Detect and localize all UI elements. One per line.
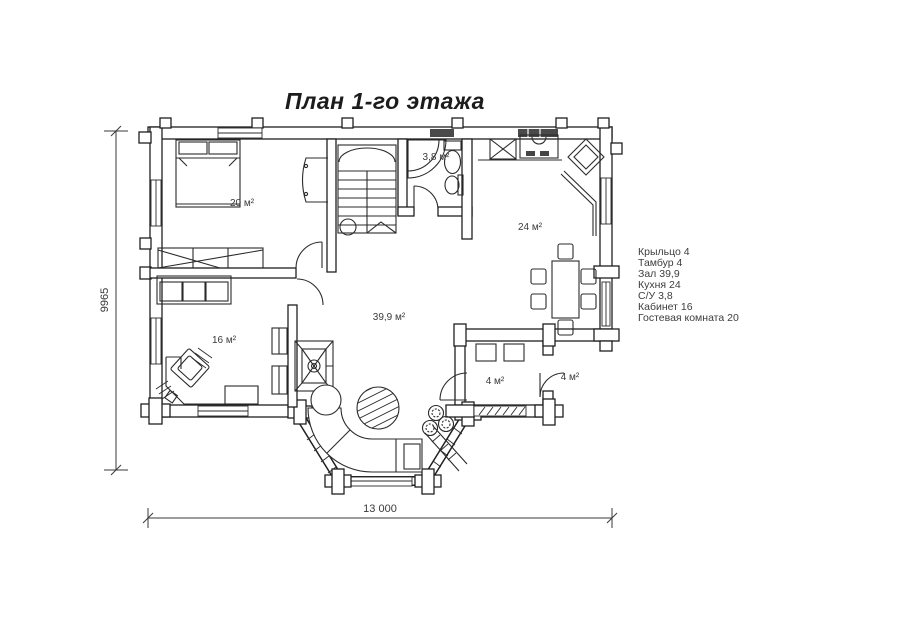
room-label-guest-room: 20 м² xyxy=(230,198,255,209)
room-legend: Крыльцо 4 Тамбур 4 Зал 39,9 Кухня 24 С/У… xyxy=(638,247,739,324)
interior-walls xyxy=(150,139,472,407)
office-armchair xyxy=(170,348,210,388)
fireplace xyxy=(295,341,333,391)
bathroom-fixtures xyxy=(408,140,463,195)
room-label-tambour: 4 м² xyxy=(486,376,505,387)
tambour-bench xyxy=(476,344,524,361)
room-label-hall: 39,9 м² xyxy=(373,312,406,323)
wardrobe xyxy=(158,248,263,268)
double-bed xyxy=(176,140,240,207)
legend-item-guest-room: Гостевая комната 20 xyxy=(638,313,739,324)
hall-shelves xyxy=(272,328,287,394)
dimension-height: 9965 xyxy=(99,288,111,312)
log-joints xyxy=(139,118,622,494)
room-label-kitchen: 24 м² xyxy=(518,222,543,233)
dimension-width: 13 000 xyxy=(363,503,397,515)
floor-plan-page: План 1-го этажа xyxy=(0,0,900,636)
office-desk xyxy=(166,357,258,404)
room-label-bathroom: 3,8 м² xyxy=(423,152,451,163)
corner-stove xyxy=(561,139,604,236)
room-label-office: 16 м² xyxy=(212,335,237,346)
bedroom-cabinet xyxy=(303,158,329,202)
dining-set xyxy=(531,244,596,335)
throw-blanket xyxy=(192,348,212,368)
office-sofa xyxy=(157,276,231,304)
round-rug xyxy=(352,372,404,446)
floor-plan-drawing: 9965 13 000 20 м² 3,8 м² 24 м² 39,9 м² 1… xyxy=(0,0,900,636)
kitchen-sink xyxy=(490,139,516,159)
room-label-porch: 4 м² xyxy=(561,372,580,383)
staircase xyxy=(338,145,396,235)
wash-basin xyxy=(445,175,463,195)
